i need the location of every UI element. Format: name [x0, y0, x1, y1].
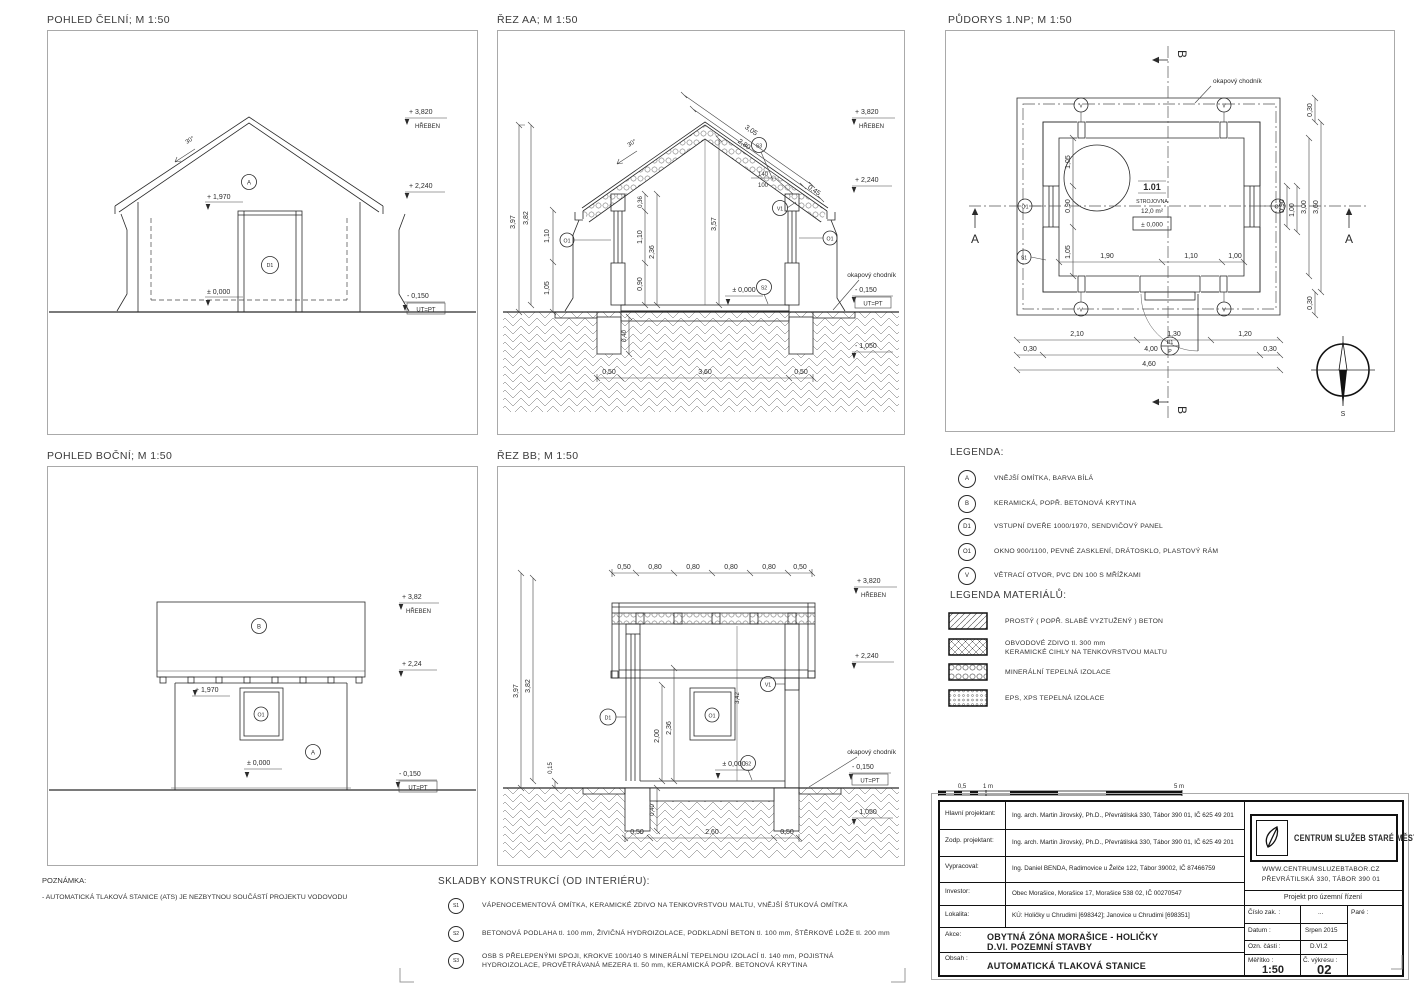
marker-b: B — [257, 625, 261, 631]
panel-title-section-aa: ŘEZ AA; M 1:50 — [497, 14, 578, 26]
legend-key-d1: D1 — [958, 518, 976, 536]
level-ridge-name: HŘEBEN — [859, 122, 884, 130]
level-eave: + 2,240 — [855, 177, 879, 184]
legend-key-b: B — [958, 495, 976, 513]
dim-label: 0,90 — [637, 277, 644, 291]
dim-label: 0,50 — [630, 829, 644, 836]
dim-label: 0,45 — [806, 184, 821, 198]
tb-obsah-label: Obsah : — [945, 955, 968, 962]
level-door: + 1,970 — [195, 687, 219, 694]
section-aa-markers: S3 V1 O1 O1 S2 — [560, 138, 837, 305]
dim-label: 0,30 — [1307, 296, 1314, 310]
tb-cislo-value: ... — [1318, 909, 1323, 916]
dim-label: 2,60 — [705, 829, 719, 836]
section-aa-ground — [503, 312, 899, 412]
panel-title-plan: PŮDORYS 1.NP; M 1:50 — [948, 14, 1072, 26]
compass-rose: S — [1311, 336, 1375, 418]
material-swatch-masonry — [948, 638, 988, 656]
dim-label: 1,30 — [1167, 331, 1181, 338]
dim-label: 2,10 — [1070, 331, 1084, 338]
panel-front-elevation: 30° A D1 + 3,820 HŘEBEN + 2,240 - 0,150 … — [47, 30, 478, 435]
dim-label: 0,40 — [650, 804, 656, 816]
marker-v: V — [1222, 308, 1226, 314]
marker-v: V — [1222, 104, 1226, 110]
level-ground: - 0,150 — [407, 293, 429, 300]
section-bb-markers: D1 O1 V1 S2 — [600, 677, 785, 781]
legend-key-o1: O1 — [958, 543, 976, 561]
marker-o1: O1 — [709, 714, 716, 720]
level-eave: + 2,240 — [855, 653, 879, 660]
label-okapovy-chodnik: okapový chodník — [847, 749, 897, 756]
material-swatch-concrete — [948, 612, 988, 630]
legend-key-a: A — [958, 470, 976, 488]
legend-text: VĚTRACÍ OTVOR, PVC DN 100 S MŘÍŽKAMI — [994, 571, 1141, 580]
front-markers: A D1 — [242, 175, 279, 274]
dim-label: 3,00 — [1301, 200, 1308, 214]
level-ut: UT=PT — [408, 786, 428, 792]
dim-label: 1,20 — [1238, 331, 1252, 338]
dim-label: 0,36 — [638, 196, 644, 208]
material-swatch-mineral-wool — [948, 663, 988, 681]
level-eave: + 2,24 — [402, 661, 422, 668]
tb-row-label: Hlavní projektant: — [945, 810, 996, 817]
legend-item: D1 VSTUPNÍ DVEŘE 1000/1970, SENDVIČOVÝ P… — [958, 518, 1388, 536]
level-zero: ± 0,000 — [207, 289, 230, 296]
legend-item: O1 OKNO 900/1100, PEVNÉ ZASKLENÍ, DRÁTOS… — [958, 543, 1388, 561]
dim-label: 140 — [758, 172, 769, 178]
materials-legend-title: LEGENDA MATERIÁLŮ: — [950, 590, 1067, 601]
company-name: CENTRUM SLUŽEB STARÉ MĚSTO — [1294, 833, 1414, 844]
side-levels: + 3,82 HŘEBEN + 2,24 + 1,970 ± 0,000 - 0… — [192, 594, 439, 792]
scale-label: 0,5 — [958, 784, 967, 790]
level-ridge: + 3,820 — [857, 578, 881, 585]
dim-label: 1,00 — [1228, 253, 1242, 260]
level-ut: UT=PT — [416, 308, 436, 314]
level-ground: - 0,150 — [852, 764, 874, 771]
plan-dimensions: 1,90 1,10 1,00 1,05 0,90 1,05 2,10 1,30 … — [1014, 95, 1324, 373]
dim-label: 3,42 — [735, 692, 741, 704]
section-mark-b: B — [1175, 406, 1189, 414]
dim-label: 0,50 — [794, 369, 808, 376]
assembly-key-s2: S2 — [448, 926, 464, 942]
dim-label: 1,05 — [1065, 155, 1072, 169]
assembly-key-s1: S1 — [448, 898, 464, 914]
level-ridge: + 3,820 — [855, 109, 879, 116]
plan-interior: 1.01 STROJOVNA 12,0 m² ± 0,000 — [1064, 145, 1171, 230]
dim-label: 0,30 — [1263, 346, 1277, 353]
dim-label: 0,50 — [617, 564, 631, 571]
tb-akce-label: Akce: — [945, 931, 961, 938]
marker-v: V — [1079, 308, 1083, 314]
assembly-item: S2 BETONOVÁ PODLAHA tl. 100 mm, ŽIVIČNÁ … — [448, 926, 918, 942]
marker-v1: V1 — [765, 683, 771, 689]
marker-v: V — [1079, 104, 1083, 110]
tb-pare-label: Paré : — [1351, 909, 1368, 916]
marker-d1: D1 — [1167, 340, 1174, 346]
tb-row-label: Investor: — [945, 888, 970, 895]
legend-item: A VNĚJŠÍ OMÍTKA, BARVA BÍLÁ — [958, 470, 1388, 488]
tb-row-label: Lokalita: — [945, 911, 969, 918]
tb-datum-label: Datum : — [1248, 927, 1271, 934]
level-ground: - 0,150 — [855, 287, 877, 294]
dim-label: 3,57 — [711, 217, 718, 231]
slope-label: 30° — [627, 138, 638, 148]
dim-label: 1,10 — [1184, 253, 1198, 260]
level-eave: + 2,240 — [409, 183, 433, 190]
marker-o1: O1 — [1022, 205, 1029, 211]
dim-label: 0,40 — [622, 330, 628, 342]
tb-ozn-value: D.VI.2 — [1310, 943, 1328, 950]
assembly-item: S1 VÁPENOCEMENTOVÁ OMÍTKA, KERAMICKÉ ZDI… — [448, 898, 918, 914]
marker-d1: D1 — [267, 263, 274, 269]
level-zero: ± 0,000 — [247, 760, 270, 767]
slope-label: 30° — [185, 135, 196, 145]
assembly-text: OSB S PŘELEPENÝMI SPOJI, KROKVE 100/140 … — [482, 953, 834, 960]
panel-side-elevation: B O1 A + 3,82 HŘEBEN + 2,24 + 1,970 ± 0,… — [47, 466, 478, 866]
dim-label: 0,50 — [793, 564, 807, 571]
level-zero: ± 0,000 — [732, 287, 755, 294]
level-foundation: - 1,050 — [855, 343, 877, 350]
room-name: STROJOVNA — [1136, 199, 1168, 205]
material-text: KERAMICKÉ CIHLY NA TENKOVRSTVOU MALTU — [1005, 648, 1167, 657]
tb-obsah-value: AUTOMATICKÁ TLAKOVÁ STANICE — [987, 961, 1146, 971]
panel-section-bb: D1 O1 V1 S2 0,50 0,80 0,80 0,80 0,80 0,5… — [497, 466, 905, 866]
front-slope-annotation: 30° — [175, 135, 196, 162]
marker-a: A — [311, 751, 315, 757]
marker-o1: O1 — [564, 239, 571, 245]
assembly-text: BETONOVÁ PODLAHA tl. 100 mm, ŽIVIČNÁ HYD… — [482, 929, 890, 938]
room-level: ± 0,000 — [1141, 222, 1163, 229]
leaf-icon — [1256, 820, 1288, 856]
project-type: Projekt pro územní řízení — [1244, 894, 1402, 901]
dim-label: 3,60 — [698, 369, 712, 376]
dim-label: 2,36 — [666, 721, 673, 735]
tb-row-value: Ing. arch. Martin Jirovský, Ph.D., Převr… — [1012, 839, 1234, 846]
dim-label: 0,50 — [602, 369, 616, 376]
dim-label: 0,80 — [648, 564, 662, 571]
room-area: 12,0 m² — [1141, 208, 1164, 215]
marker-a: A — [247, 181, 251, 187]
section-mark-b: B — [1175, 50, 1189, 58]
section-mark-a: A — [1345, 232, 1353, 246]
dim-label: 4,00 — [1144, 346, 1158, 353]
dim-label: 0,50 — [780, 829, 794, 836]
tb-row-value: Obec Morašice, Morašice 17, Morašice 538… — [1012, 890, 1182, 897]
marker-s3: S3 — [756, 144, 762, 150]
legend-text: OKNO 900/1100, PEVNÉ ZASKLENÍ, DRÁTOSKLO… — [994, 547, 1218, 556]
dim-label: 1,05 — [1065, 245, 1072, 259]
material-text: PROSTÝ ( POPŘ. SLABĚ VYZTUŽENÝ ) BETON — [1005, 617, 1163, 626]
marker-o1: O1 — [258, 713, 265, 719]
marker-v1: V1 — [777, 207, 783, 213]
compass-south-label: S — [1341, 411, 1346, 418]
tb-row-value: Ing. Daniel BENDA, Radimovice u Želče 12… — [1012, 865, 1215, 872]
dim-label: 3,97 — [513, 684, 520, 698]
level-ridge-name: HŘEBEN — [415, 122, 440, 130]
legend-text: KERAMICKÁ, POPŘ. BETONOVÁ KRYTINA — [994, 499, 1136, 508]
tb-row-value: KÚ: Holičky u Chrudimi [698342]; Janovic… — [1012, 912, 1190, 919]
section-aa-roof — [565, 122, 845, 311]
dim-label: 100 — [758, 183, 769, 189]
level-ridge: + 3,82 — [402, 594, 422, 601]
level-door: + 1,970 — [207, 194, 231, 201]
legend-key-v: V — [958, 567, 976, 585]
marker-s1: S1 — [1021, 256, 1027, 262]
tb-row-value: Ing. arch. Martin Jirovský, Ph.D., Převr… — [1012, 812, 1234, 819]
assemblies-title: SKLADBY KONSTRUKCÍ (OD INTERIÉRU): — [438, 876, 650, 887]
panel-floor-plan: 1.01 STROJOVNA 12,0 m² ± 0,000 A A B B V… — [945, 30, 1395, 432]
level-ridge-name: HŘEBEN — [406, 607, 431, 615]
level-zero: ± 0,000 — [722, 761, 745, 768]
legend-text: VNĚJŠÍ OMÍTKA, BARVA BÍLÁ — [994, 474, 1093, 483]
panel-title-front: POHLED ČELNÍ; M 1:50 — [47, 14, 170, 26]
panel-section-aa: 3,97 3,82 1,10 1,05 0,36 1,10 0,90 2,36 … — [497, 30, 905, 435]
panel-title-side: POHLED BOČNÍ; M 1:50 — [47, 450, 172, 462]
assembly-text: HYDROIZOLACE, PROVĚTRÁVANÁ MEZERA tl. 50… — [482, 962, 807, 969]
dim-label: 1,10 — [637, 230, 644, 244]
assembly-key-s3: S3 — [448, 953, 464, 969]
company-address: PŘEVRÁTILSKÁ 330, TÁBOR 390 01 — [1244, 876, 1398, 883]
dim-label: 0,90 — [1279, 199, 1286, 213]
dim-label: 0,80 — [762, 564, 776, 571]
dim-label: 3,97 — [510, 215, 517, 229]
titleblock: Hlavní projektant: Ing. arch. Martin Jir… — [938, 800, 1404, 977]
tb-meritko-value: 1:50 — [1262, 964, 1284, 976]
marker-d1: D1 — [605, 716, 612, 722]
dim-label: 0,80 — [686, 564, 700, 571]
dim-label: 2,00 — [654, 729, 661, 743]
level-ridge: + 3,820 — [409, 109, 433, 116]
room-number: 1.01 — [1143, 182, 1161, 192]
front-house-outline — [49, 117, 476, 312]
level-ut: UT=PT — [860, 779, 880, 785]
legend-item: B KERAMICKÁ, POPŘ. BETONOVÁ KRYTINA — [958, 495, 1388, 513]
tb-meritko-label: Měřítko : — [1248, 957, 1273, 964]
company-web: WWW.CENTRUMSLUZEBTABOR.CZ — [1244, 866, 1398, 873]
section-bb-roof — [611, 603, 815, 678]
scale-label: 1 m — [983, 784, 993, 790]
side-markers: B O1 A — [252, 619, 321, 760]
tb-vykres-value: 02 — [1317, 962, 1331, 977]
marker-o1: O1 — [827, 237, 834, 243]
level-ut: UT=PT — [863, 302, 883, 308]
level-ground: - 0,150 — [399, 771, 421, 778]
panel-title-section-bb: ŘEZ BB; M 1:50 — [497, 450, 578, 462]
dim-label: 1,05 — [544, 281, 551, 295]
dim-label: 0,30 — [1307, 103, 1314, 117]
front-levels: + 3,820 HŘEBEN + 2,240 - 0,150 UT=PT + 1… — [205, 109, 447, 314]
dim-label: 1,90 — [1100, 253, 1114, 260]
material-text: EPS, XPS TEPELNÁ IZOLACE — [1005, 694, 1105, 703]
section-mark-a: A — [971, 232, 979, 246]
level-foundation: - 1,050 — [855, 809, 877, 816]
tb-akce-line2: D.VI. POZEMNÍ STAVBY — [987, 942, 1092, 952]
marker-s2: S2 — [761, 286, 767, 292]
marker-p: P — [1168, 349, 1172, 355]
dim-label: 2,36 — [649, 245, 656, 259]
legend-text: VSTUPNÍ DVEŘE 1000/1970, SENDVIČOVÝ PANE… — [994, 522, 1163, 531]
dim-label: 1,00 — [1289, 203, 1296, 217]
dim-label: 4,60 — [1142, 361, 1156, 368]
dim-label: 3,82 — [525, 679, 532, 693]
dim-label: 0,15 — [548, 762, 554, 774]
note-text: - AUTOMATICKÁ TLAKOVÁ STANICE (ATS) JE N… — [42, 894, 347, 901]
dim-label: 3,60 — [1313, 200, 1320, 214]
scale-label: 5 m — [1174, 784, 1184, 790]
assembly-item: S3 OSB S PŘELEPENÝMI SPOJI, KROKVE 100/1… — [448, 952, 918, 970]
note-title: POZNÁMKA: — [42, 876, 86, 885]
tb-row-label: Zodp. projektant: — [945, 837, 994, 844]
tb-datum-value: Srpen 2015 — [1305, 927, 1338, 934]
dim-label: 3,82 — [523, 211, 530, 225]
dim-label: 3,05 — [743, 124, 758, 138]
level-ridge-name: HŘEBEN — [861, 591, 886, 599]
tb-row-label: Vypracoval: — [945, 863, 979, 870]
label-okapovy-chodnik: okapový chodník — [847, 272, 897, 279]
assembly-text: VÁPENOCEMENTOVÁ OMÍTKA, KERAMICKÉ ZDIVO … — [482, 901, 848, 910]
dim-label: 0,80 — [724, 564, 738, 571]
legend-item: V VĚTRACÍ OTVOR, PVC DN 100 S MŘÍŽKAMI — [958, 567, 1388, 585]
label-okapovy-chodnik: okapový chodník — [1213, 78, 1263, 85]
legend-title: LEGENDA: — [950, 447, 1004, 458]
material-text: MINERÁLNÍ TEPELNÁ IZOLACE — [1005, 668, 1111, 677]
marker-s2: S2 — [745, 762, 751, 768]
dim-label: 0,90 — [1065, 199, 1072, 213]
material-swatch-eps — [948, 689, 988, 707]
dim-label: 0,30 — [1023, 346, 1037, 353]
tb-akce-line1: OBYTNÁ ZÓNA MORAŠICE - HOLIČKY — [987, 932, 1158, 942]
tb-cislo-label: Číslo zak. : — [1248, 909, 1280, 916]
section-bb-walls — [626, 624, 799, 788]
dim-label: 1,10 — [544, 229, 551, 243]
tb-ozn-label: Ozn. části : — [1248, 943, 1281, 950]
company-logo: CENTRUM SLUŽEB STARÉ MĚSTO — [1250, 814, 1398, 862]
material-text: OBVODOVÉ ZDIVO tl. 300 mm — [1005, 639, 1105, 648]
drawing-sheet: POHLED ČELNÍ; M 1:50 30° A D1 + 3,820 — [0, 0, 1414, 1000]
